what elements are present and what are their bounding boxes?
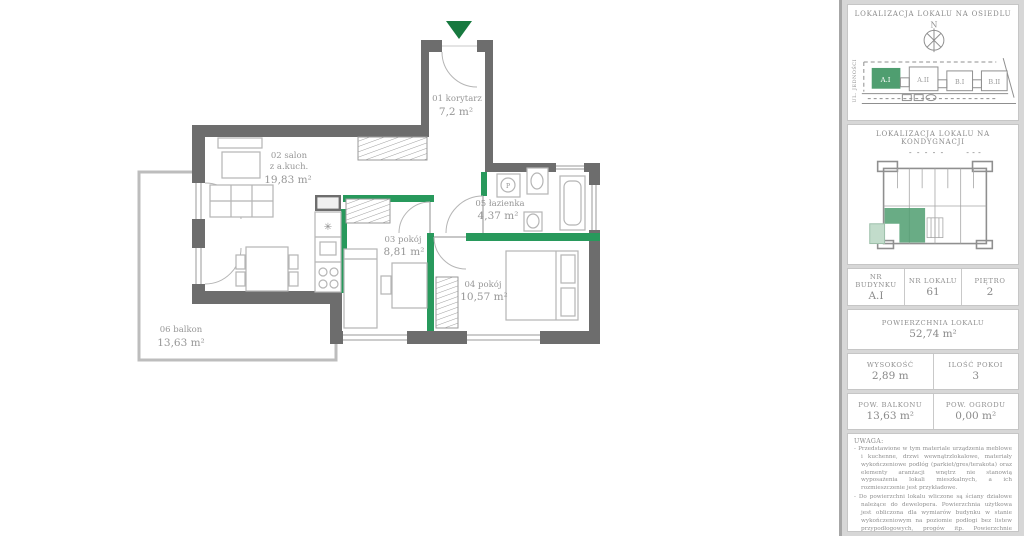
ilosc-pokoi-value: 3	[934, 370, 1019, 382]
room-label-korytarz: 01 korytarz	[432, 94, 482, 104]
pow-balkonu-value: 13,63 m²	[848, 410, 933, 422]
wysokosc-label: WYSOKOŚĆ	[848, 361, 933, 369]
panel-area: POWIERZCHNIA LOKALU 52,74 m²	[847, 309, 1019, 350]
cell-nr-lokalu: NR LOKALU 61	[904, 269, 961, 305]
bed-03	[344, 249, 377, 328]
chair	[289, 272, 298, 286]
pillow	[561, 255, 575, 283]
nr-lokalu-value: 61	[905, 286, 961, 298]
pow-ogrodu-value: 0,00 m²	[934, 410, 1019, 422]
disclaimer-title: UWAGA:	[854, 438, 1012, 445]
street-label: UL. JEDNOŚCI	[850, 59, 858, 103]
disclaimer-item: Przedstawione w tym materiale urządzenia…	[854, 446, 1012, 493]
powierzchnia-label: POWIERZCHNIA LOKALU	[848, 319, 1018, 327]
dining-table	[246, 247, 288, 291]
apartment-floorplan: ✳ P 01 korytarz 7,2 m² 02 salon z a.kuch…	[0, 0, 840, 536]
washer-symbol: P	[506, 183, 510, 190]
cell-nr-budynku: NR BUDYNKU A.I	[848, 269, 904, 305]
panel-title-floor: LOKALIZACJA LOKALU NA KONDYGNACJI	[848, 125, 1018, 146]
room-area-korytarz: 7,2 m²	[439, 106, 473, 118]
panel-height-rooms: WYSOKOŚĆ 2,89 m ILOŚĆ POKOI 3	[847, 353, 1019, 390]
hob-burner	[330, 280, 338, 288]
building-a2-label: A.II	[916, 76, 929, 84]
panel-title-estate: LOKALIZACJA LOKALU NA OSIEDLU	[848, 5, 1018, 18]
pillow	[561, 288, 575, 316]
cell-wysokosc: WYSOKOŚĆ 2,89 m	[848, 354, 933, 389]
room-label-salon: 02 salon	[271, 151, 308, 161]
pietro-value: 2	[962, 286, 1018, 298]
compass-icon: N	[924, 20, 944, 52]
site-plan-diagram: N UL. JEDNOŚCI	[848, 18, 1019, 110]
room-label-salon-2: z a.kuch.	[270, 162, 309, 172]
parked-cars	[902, 95, 936, 101]
room-area-balkon: 13,63 m²	[157, 337, 205, 349]
desk-03	[392, 263, 427, 308]
nr-budynku-label: NR BUDYNKU	[848, 273, 904, 289]
room-area-salon: 19,83 m²	[264, 174, 312, 186]
chair-03	[381, 276, 391, 294]
panel-balcony-garden: POW. BALKONU 13,63 m² POW. OGRODU 0,00 m…	[847, 393, 1019, 430]
floor-location-diagram	[848, 146, 1019, 264]
room-label-balkon: 06 balkon	[160, 325, 203, 335]
unit-partitions	[884, 168, 987, 243]
pow-balkonu-label: POW. BALKONU	[848, 401, 933, 409]
building-b1-label: B.I	[955, 78, 965, 86]
room-label-lazienka: 05 łazienka	[475, 199, 524, 209]
room-label-pokoj4: 04 pokój	[465, 279, 502, 290]
chair	[236, 272, 245, 286]
cell-pietro: PIĘTRO 2	[961, 269, 1018, 305]
highlighted-unit	[885, 208, 926, 243]
cell-pow-ogrodu: POW. OGRODU 0,00 m²	[933, 394, 1019, 429]
tv-cabinet	[222, 152, 260, 178]
panel-location-floor: LOKALIZACJA LOKALU NA KONDYGNACJI	[847, 124, 1019, 265]
cell-pow-balkonu: POW. BALKONU 13,63 m²	[848, 394, 933, 429]
room-area-pokoj4: 10,57 m²	[460, 291, 508, 303]
floorplan-drawing: ✳ P 01 korytarz 7,2 m² 02 salon z a.kuch…	[0, 0, 840, 536]
hob-burner	[319, 268, 327, 276]
room-area-pokoj3: 8,81 m²	[384, 246, 425, 258]
pietro-label: PIĘTRO	[962, 277, 1018, 285]
hob-burner	[319, 280, 327, 288]
panel-disclaimer: UWAGA: Przedstawione w tym materiale urz…	[847, 433, 1019, 532]
building-b2-label: B.II	[988, 78, 1000, 86]
cell-ilosc-pokoi: ILOŚĆ POKOI 3	[933, 354, 1019, 389]
cell-powierzchnia: POWIERZCHNIA LOKALU 52,74 m²	[848, 310, 1018, 349]
room-label-pokoj3: 03 pokój	[385, 234, 422, 245]
highlighted-balcony	[870, 224, 885, 244]
floorplan-page: ✳ P 01 korytarz 7,2 m² 02 salon z a.kuch…	[0, 0, 1024, 536]
interior-doors	[399, 196, 483, 269]
powierzchnia-value: 52,74 m²	[848, 328, 1018, 340]
disclaimer-item: Do powierzchni lokalu wliczone są ściany…	[854, 494, 1012, 532]
wysokosc-value: 2,89 m	[848, 370, 933, 382]
hob-burner	[330, 268, 338, 276]
compass-north-label: N	[931, 20, 938, 29]
kitchen-sink	[320, 242, 336, 255]
site-buildings: A.I A.II B.I B.II	[872, 67, 1007, 91]
building-a1-label: A.I	[880, 76, 891, 84]
info-sidebar: LOKALIZACJA LOKALU NA OSIEDLU N UL. JEDN…	[839, 0, 1024, 536]
sideboard	[218, 138, 262, 148]
hob-symbol: ✳	[324, 222, 332, 233]
nr-budynku-value: A.I	[848, 290, 904, 302]
room-area-lazienka: 4,37 m²	[478, 210, 519, 222]
panel-location-estate: LOKALIZACJA LOKALU NA OSIEDLU N UL. JEDN…	[847, 4, 1019, 121]
chair	[236, 255, 245, 269]
nr-lokalu-label: NR LOKALU	[905, 277, 961, 285]
ilosc-pokoi-label: ILOŚĆ POKOI	[934, 361, 1019, 369]
shaft	[318, 198, 338, 208]
entrance-arrow-icon	[446, 21, 472, 39]
chair	[289, 255, 298, 269]
disclaimer-list: Przedstawione w tym materiale urządzenia…	[854, 446, 1012, 532]
pow-ogrodu-label: POW. OGRODU	[934, 401, 1019, 409]
panel-building-info: NR BUDYNKU A.I NR LOKALU 61 PIĘTRO 2	[847, 268, 1019, 306]
